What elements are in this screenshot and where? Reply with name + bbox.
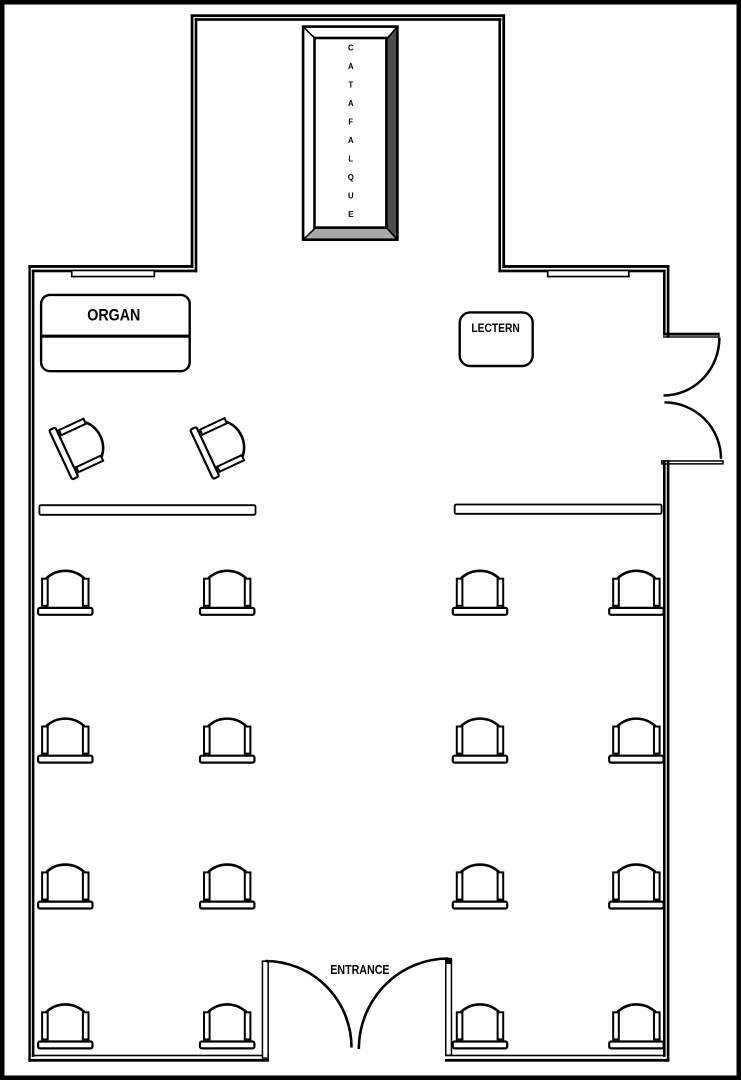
svg-text:LECTERN: LECTERN [471,321,520,335]
svg-text:A: A [348,136,354,145]
svg-text:U: U [348,192,354,201]
svg-text:L: L [348,155,353,164]
svg-text:ORGAN: ORGAN [87,305,140,324]
svg-text:A: A [348,99,354,108]
svg-text:Q: Q [348,173,354,182]
svg-text:C: C [348,44,354,53]
svg-text:A: A [348,62,354,71]
svg-text:F: F [348,118,353,127]
svg-text:ENTRANCE: ENTRANCE [330,962,390,977]
svg-text:E: E [348,210,353,219]
svg-text:T: T [348,81,353,90]
